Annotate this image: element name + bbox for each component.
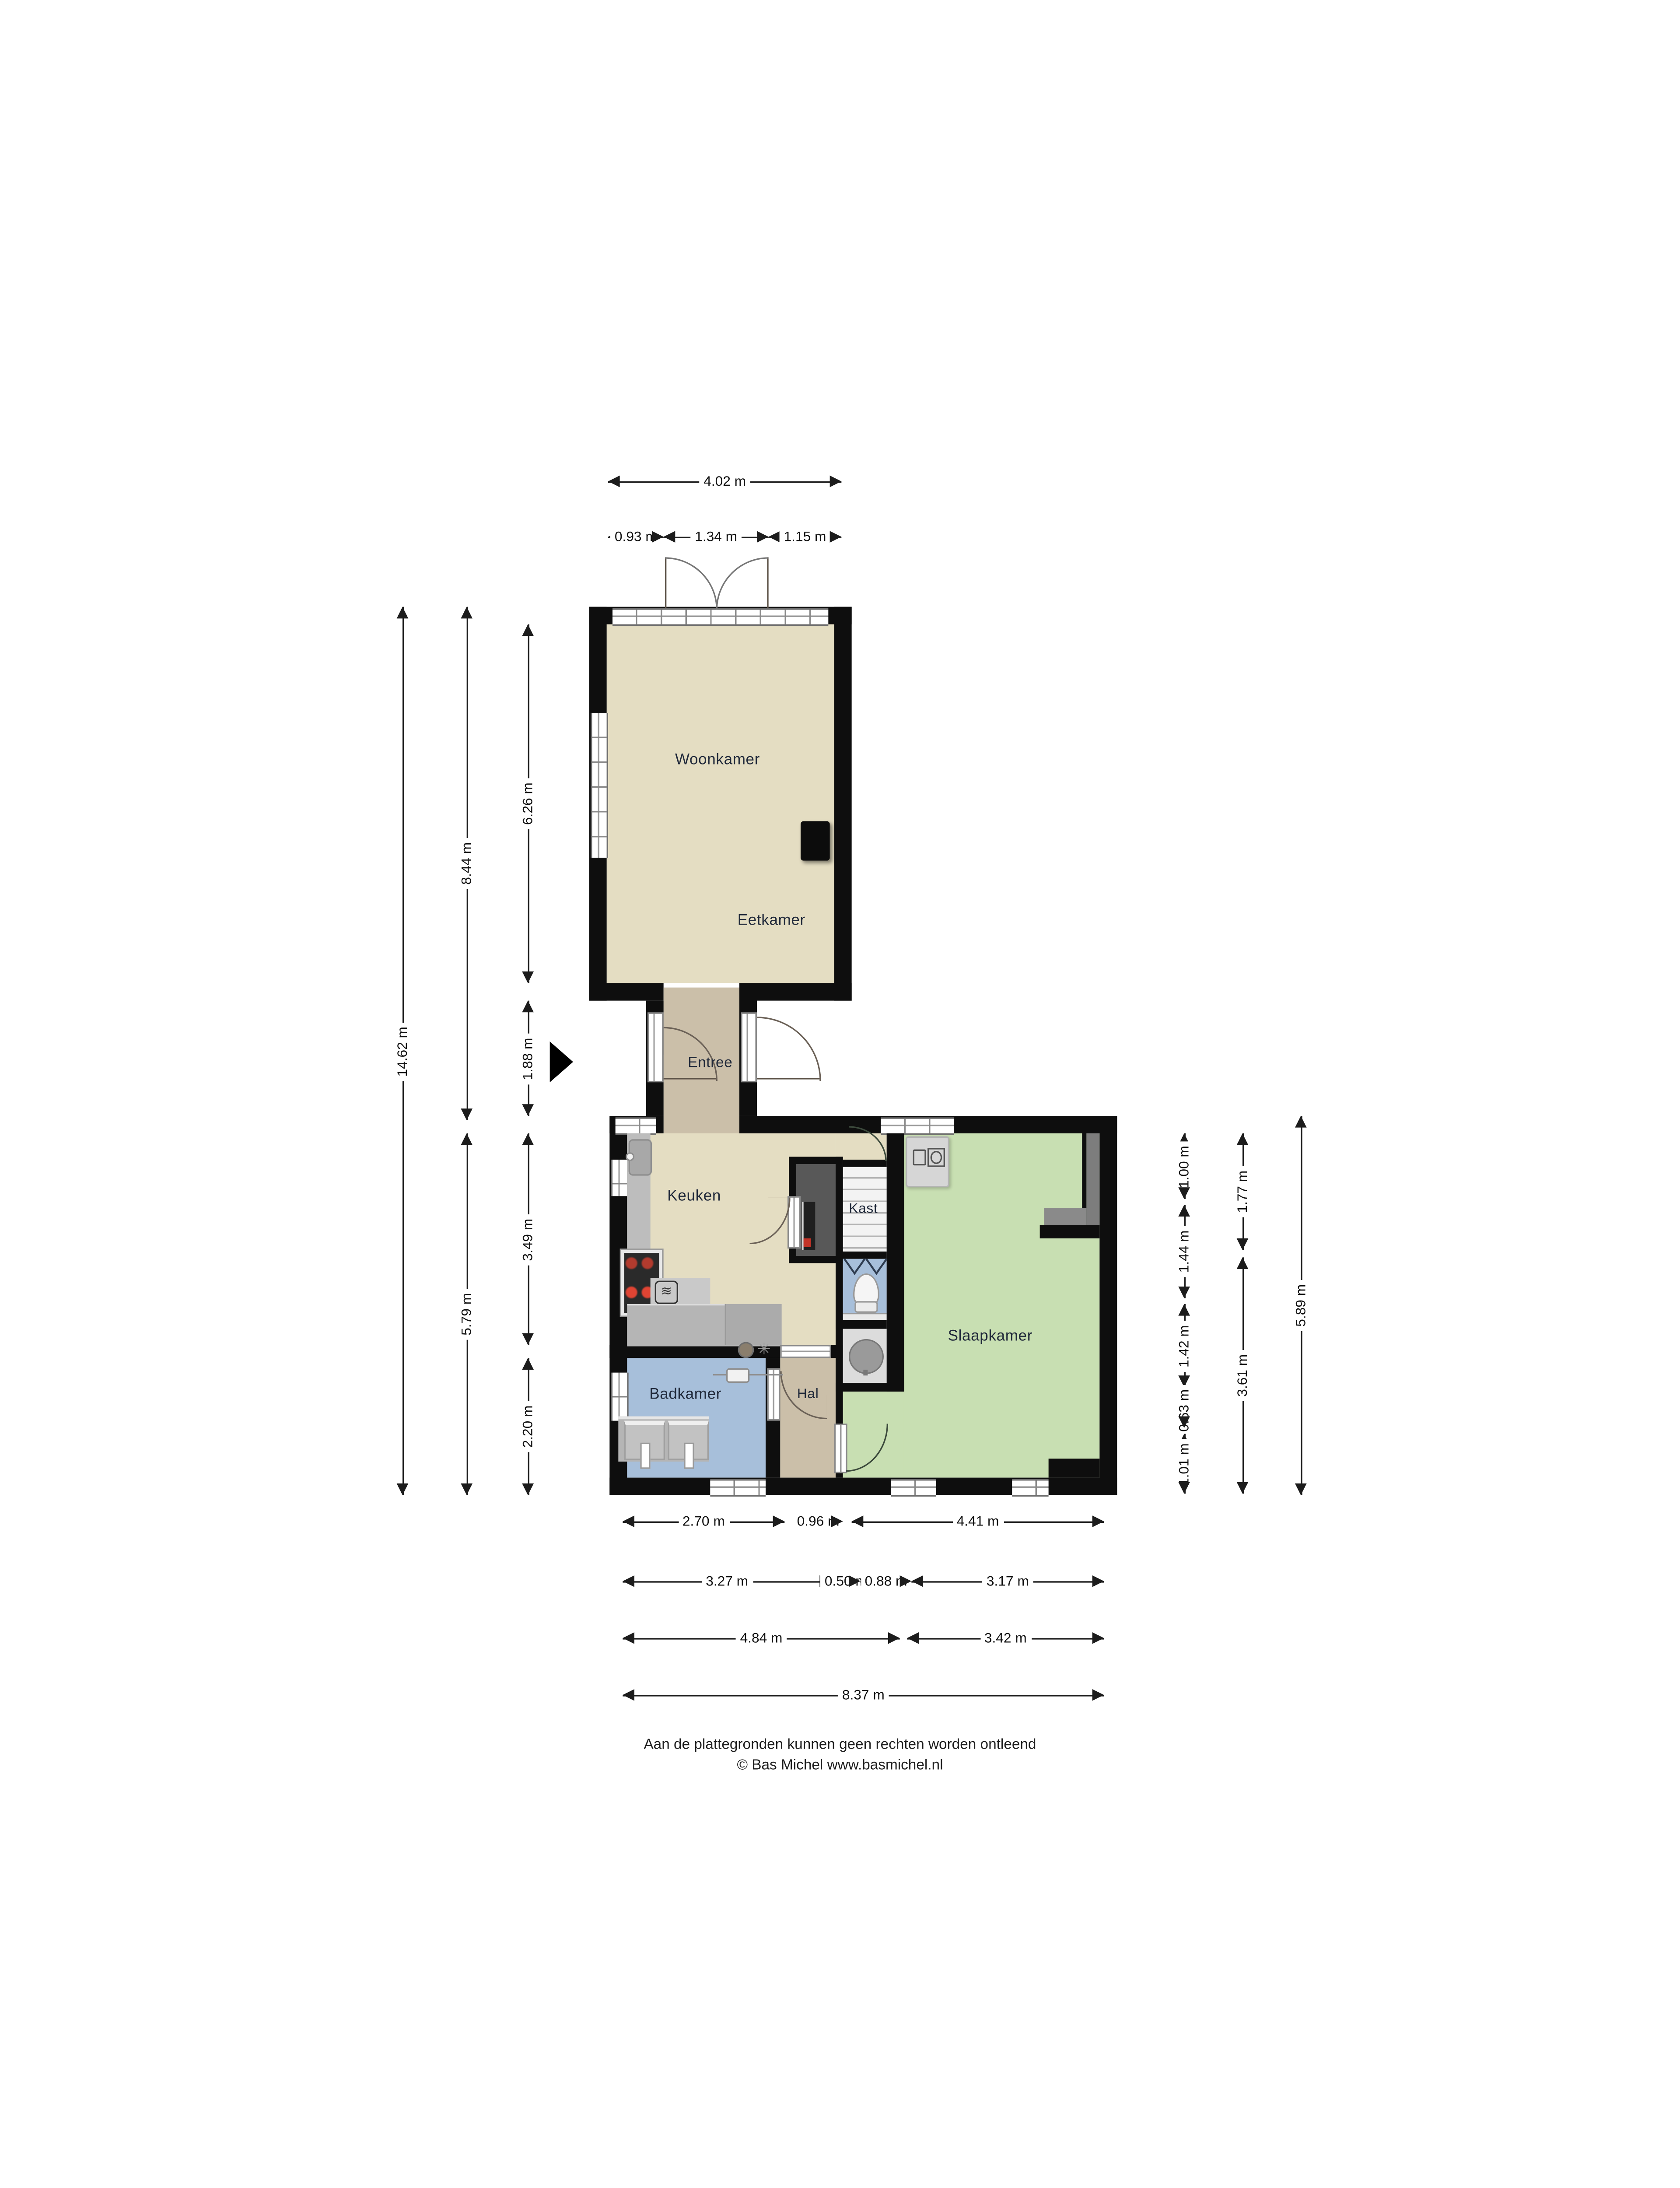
- copyright-line: © Bas Michel www.basmichel.nl: [0, 1756, 1680, 1777]
- lower-wall-corner-step: [1049, 1459, 1100, 1477]
- wall-keuken-slaapkamer: [887, 1133, 904, 1392]
- dimension-left-upper: 8.44 m: [467, 607, 468, 1120]
- page: 4.02 m 0.93 m 1.34 m 1.15 m 14.62 m 8.44…: [0, 0, 1680, 2188]
- boiler-tank-stem: [863, 1370, 868, 1375]
- slaapkamer-door: [834, 1424, 847, 1473]
- shower-head-icon: [738, 1342, 754, 1358]
- dimension-right-1: 1.00 m: [1184, 1133, 1186, 1199]
- woonkamer-top-window: [612, 608, 828, 626]
- chimney-flue: [1086, 1133, 1099, 1225]
- boiler-unit-burner: [804, 1238, 811, 1247]
- woonkamer-left-window: [591, 713, 608, 858]
- upper-wall-right: [834, 607, 852, 1001]
- kitchen-counter-seam: [725, 1304, 782, 1345]
- entree-right-door: [741, 1012, 757, 1082]
- toilet-cistern: [854, 1301, 878, 1313]
- boiler-tank-icon: [849, 1339, 884, 1374]
- dimension-right-5: 1.01 m: [1184, 1434, 1186, 1494]
- dimension-top-sub-2: 1.34 m: [664, 537, 769, 538]
- badkamer-door: [767, 1368, 780, 1421]
- chimney-foot-wall: [1040, 1225, 1100, 1238]
- dimension-top-total: 4.02 m: [608, 481, 841, 483]
- kitchen-sink-faucet: [626, 1152, 634, 1161]
- double-door-left-swing: [665, 557, 717, 610]
- washing-machine-drum-circle: [931, 1151, 942, 1164]
- dimension-right-8: 5.89 m: [1301, 1116, 1302, 1495]
- dimension-bottom-r3-a: 4.84 m: [623, 1638, 899, 1639]
- hal-label: Hal: [797, 1386, 819, 1403]
- oven-icon: ≋: [655, 1281, 678, 1304]
- upper-wall-bottom-left: [589, 983, 664, 1001]
- double-door-right-swing: [716, 557, 769, 610]
- dimension-right-7: 3.61 m: [1242, 1257, 1244, 1494]
- vanity-faucet-left: [640, 1443, 650, 1469]
- badkamer-bottom-window: [710, 1479, 766, 1497]
- keuken-label: Keuken: [667, 1187, 721, 1205]
- woonkamer-label: Woonkamer: [675, 751, 760, 769]
- dimension-top-sub-3: 1.15 m: [769, 537, 842, 538]
- dimension-left-entree: 1.88 m: [528, 1001, 529, 1116]
- dimension-bottom-r2-a: 3.27 m: [623, 1581, 831, 1582]
- cooktop-burner-2: [642, 1257, 654, 1269]
- dimension-bottom-r1-slaapkamer: 4.41 m: [852, 1522, 1104, 1523]
- dimension-left-keuken: 3.49 m: [528, 1133, 529, 1345]
- lower-wall-right: [1099, 1116, 1117, 1495]
- entrance-arrow-icon: [550, 1041, 573, 1082]
- kast-label: Kast: [849, 1201, 878, 1217]
- keuken-hal-opening: [780, 1345, 831, 1358]
- wall-toilet-bottom: [836, 1320, 887, 1329]
- dimension-right-4: 0.63 m: [1184, 1393, 1186, 1428]
- dimension-right-6: 1.77 m: [1242, 1133, 1244, 1250]
- entree-right-door-leaf: [757, 1078, 819, 1079]
- dimension-bottom-r2-c: 0.88 m: [861, 1581, 912, 1582]
- badkamer-label: Badkamer: [649, 1386, 721, 1403]
- dimension-bottom-r2-d: 3.17 m: [911, 1581, 1104, 1582]
- towel-rail-holder: [726, 1368, 749, 1383]
- dimension-bottom-r2-b: 0.50 m: [831, 1581, 861, 1582]
- dimension-right-2: 1.44 m: [1184, 1205, 1186, 1298]
- entree-left-door: [647, 1012, 664, 1082]
- disclaimer-line-1: Aan de plattegronden kunnen geen rechten…: [0, 1736, 1680, 1757]
- keuken-left-window: [611, 1160, 629, 1196]
- dimension-bottom-total: 8.37 m: [623, 1695, 1104, 1696]
- dimension-left-total: 14.62 m: [402, 607, 404, 1495]
- dimension-left-badkamer: 2.20 m: [528, 1358, 529, 1495]
- wall-badkamer-hal-top-a: [609, 1345, 780, 1358]
- dimension-left-woonkamer: 6.26 m: [528, 624, 529, 983]
- entree-left-door-leaf: [664, 1078, 716, 1079]
- eetkamer-label: Eetkamer: [738, 912, 805, 929]
- dimension-bottom-r1-hal: 0.96 m: [793, 1522, 843, 1523]
- badkamer-left-window: [611, 1373, 629, 1421]
- slaapkamer-bottom-window-1: [891, 1479, 936, 1497]
- cooktop-burner-1: [626, 1257, 637, 1269]
- slaapkamer-bottom-window-2: [1012, 1479, 1048, 1497]
- dimension-top-sub-1: 0.93 m: [608, 537, 664, 538]
- keuken-top-window: [616, 1117, 656, 1135]
- chimney-block: [1044, 1208, 1087, 1225]
- entree-right-door-swing: [757, 1017, 821, 1081]
- dimension-bottom-r3-b: 3.42 m: [907, 1638, 1104, 1639]
- slaapkamer-label: Slaapkamer: [948, 1327, 1032, 1345]
- dimension-right-3: 1.42 m: [1184, 1304, 1186, 1387]
- wall-boiler-bottom: [836, 1383, 904, 1392]
- floorplan-canvas: 4.02 m 0.93 m 1.34 m 1.15 m 14.62 m 8.44…: [0, 0, 1680, 2188]
- shower-spray-icon: ✳: [757, 1340, 771, 1359]
- dimension-left-lower: 5.79 m: [467, 1133, 468, 1495]
- dimension-bottom-r1-badkamer: 2.70 m: [623, 1522, 784, 1523]
- fireplace-icon: [801, 821, 830, 861]
- slaapkamer-top-window: [881, 1117, 954, 1135]
- disclaimer-text: Aan de plattegronden kunnen geen rechten…: [0, 1736, 1680, 1777]
- entree-label: Entree: [688, 1055, 732, 1072]
- woonkamer-floor: [607, 624, 834, 983]
- cooktop-burner-3: [626, 1287, 637, 1298]
- washing-machine-detergent: [913, 1150, 926, 1166]
- vanity-faucet-right: [684, 1443, 694, 1469]
